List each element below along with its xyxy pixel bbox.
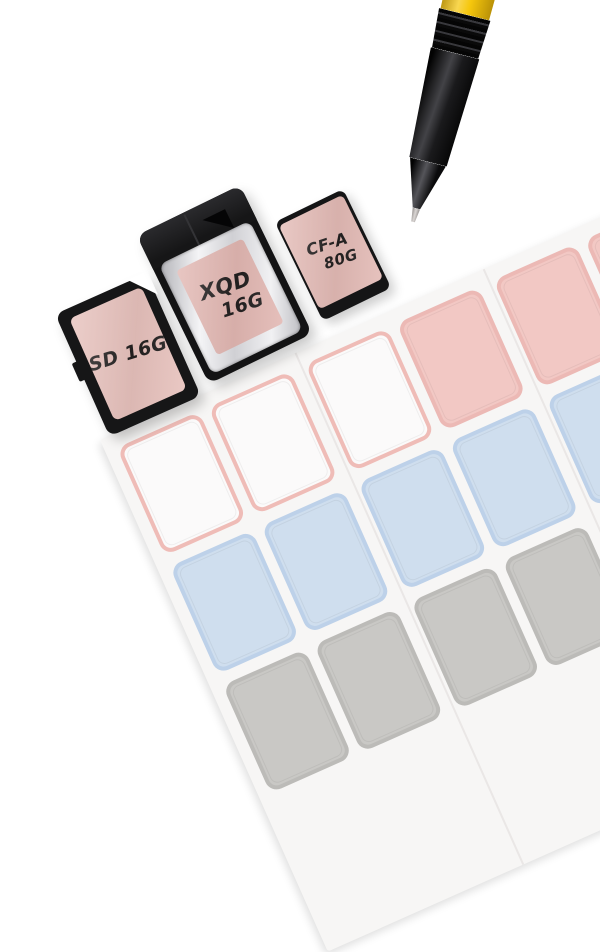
pen-tip xyxy=(409,207,421,223)
xqd-seam-line xyxy=(183,214,200,245)
cfa-card-label: CF-A 80G xyxy=(279,195,384,310)
sd-card-label-text: SD 16G xyxy=(86,332,170,377)
scene: SD 16G XQD 16G CF-A 80G xyxy=(0,0,600,600)
pen xyxy=(384,0,515,229)
xqd-card-label: XQD 16G xyxy=(176,238,284,355)
sd-card-label: SD 16G xyxy=(69,287,187,421)
pen-grip xyxy=(403,47,481,168)
sd-write-protect-switch xyxy=(72,360,87,382)
pen-cone xyxy=(396,157,448,214)
